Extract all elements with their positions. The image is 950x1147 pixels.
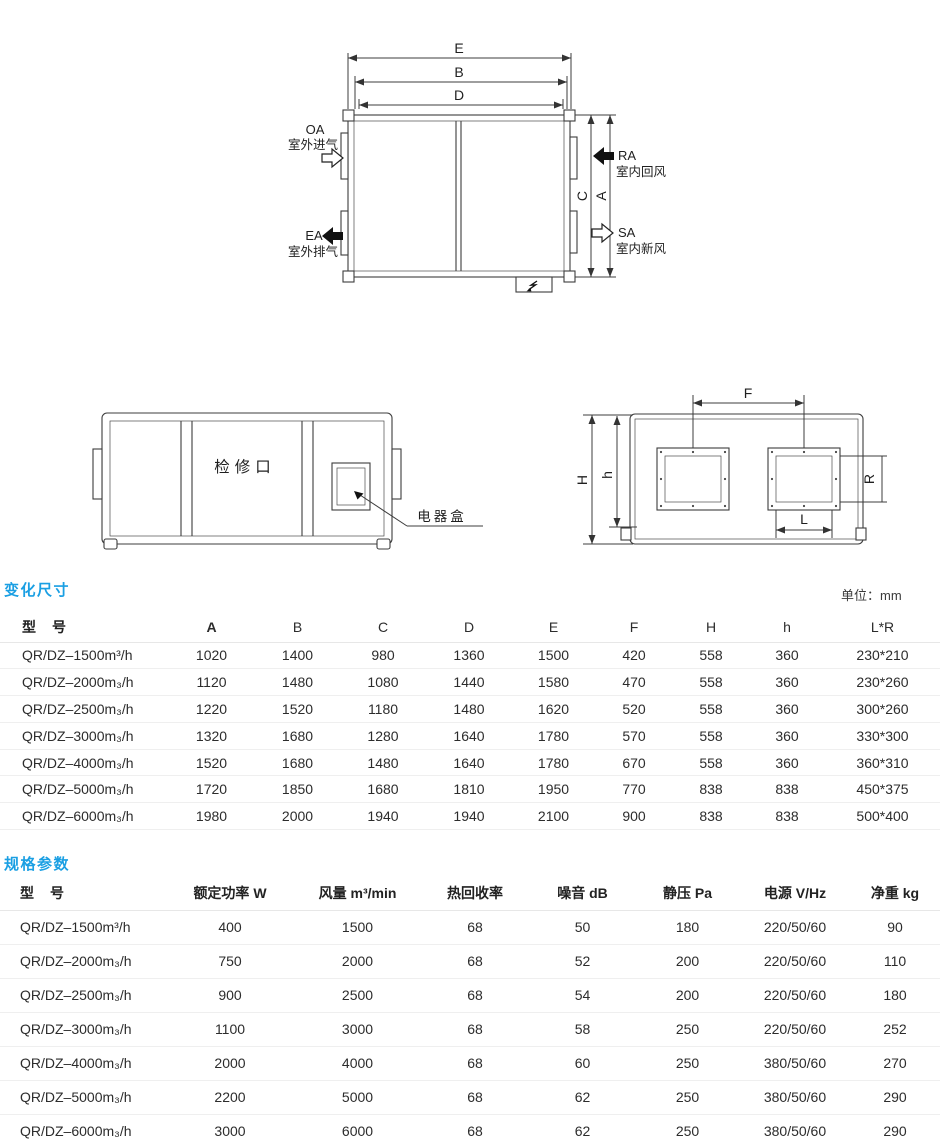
table-row: QR/DZ–4000m₃/h200040006860250380/50/6027… bbox=[0, 1046, 940, 1080]
column-header: 热回收率 bbox=[420, 876, 530, 910]
table-row: QR/DZ–3000m₃/h110030006858250220/50/6025… bbox=[0, 1012, 940, 1046]
value-cell: 450*375 bbox=[825, 776, 940, 803]
value-cell: 230*210 bbox=[825, 642, 940, 669]
value-cell: 1520 bbox=[168, 749, 255, 776]
value-cell: 558 bbox=[673, 749, 749, 776]
model-cell: QR/DZ–1500m³/h bbox=[0, 910, 165, 944]
column-header: A bbox=[168, 612, 255, 642]
column-header: D bbox=[426, 612, 512, 642]
column-header: 型 号 bbox=[0, 876, 165, 910]
column-header: 电源 V/Hz bbox=[740, 876, 850, 910]
model-cell: QR/DZ–3000m₃/h bbox=[0, 1012, 165, 1046]
solid-arrow-left-icon bbox=[322, 227, 343, 245]
value-cell: 558 bbox=[673, 722, 749, 749]
value-cell: 1440 bbox=[426, 669, 512, 696]
dim-label-b: B bbox=[454, 64, 463, 80]
column-header: 型 号 bbox=[0, 612, 168, 642]
value-cell: 68 bbox=[420, 1114, 530, 1147]
value-cell: 1080 bbox=[340, 669, 426, 696]
value-cell: 1640 bbox=[426, 749, 512, 776]
value-cell: 360 bbox=[749, 669, 825, 696]
column-header: 噪音 dB bbox=[530, 876, 635, 910]
value-cell: 360 bbox=[749, 749, 825, 776]
duct-opening-left bbox=[657, 448, 729, 510]
value-cell: 1500 bbox=[295, 910, 420, 944]
dim-label-l: L bbox=[800, 511, 808, 527]
table-row: QR/DZ–1500m³/h10201400980136015004205583… bbox=[0, 642, 940, 669]
value-cell: 1620 bbox=[512, 696, 595, 723]
value-cell: 60 bbox=[530, 1046, 635, 1080]
dim-label-a: A bbox=[593, 191, 609, 201]
column-header: L*R bbox=[825, 612, 940, 642]
value-cell: 4000 bbox=[295, 1046, 420, 1080]
value-cell: 1680 bbox=[255, 749, 340, 776]
value-cell: 68 bbox=[420, 978, 530, 1012]
value-cell: 2200 bbox=[165, 1080, 295, 1114]
port-sa: SA 室内新风 bbox=[592, 224, 667, 256]
dim-label-h-lower: h bbox=[599, 471, 615, 479]
value-cell: 3000 bbox=[295, 1012, 420, 1046]
model-cell: QR/DZ–2500m₃/h bbox=[0, 978, 165, 1012]
end-view-diagram: F H h R L bbox=[575, 383, 950, 563]
value-cell: 62 bbox=[530, 1080, 635, 1114]
port-ra: RA 室内回风 bbox=[593, 147, 667, 179]
dim-label-d: D bbox=[454, 87, 464, 103]
value-cell: 360 bbox=[749, 642, 825, 669]
value-cell: 1280 bbox=[340, 722, 426, 749]
value-cell: 1720 bbox=[168, 776, 255, 803]
column-header: 额定功率 W bbox=[165, 876, 295, 910]
value-cell: 220/50/60 bbox=[740, 978, 850, 1012]
value-cell: 1640 bbox=[426, 722, 512, 749]
value-cell: 1480 bbox=[340, 749, 426, 776]
column-header: h bbox=[749, 612, 825, 642]
value-cell: 1940 bbox=[426, 803, 512, 830]
dim-label-f: F bbox=[744, 385, 753, 401]
value-cell: 1850 bbox=[255, 776, 340, 803]
value-cell: 2000 bbox=[295, 944, 420, 978]
value-cell: 6000 bbox=[295, 1114, 420, 1147]
dim-label-e: E bbox=[454, 40, 463, 56]
value-cell: 200 bbox=[635, 944, 740, 978]
model-cell: QR/DZ–3000m₃/h bbox=[0, 722, 168, 749]
value-cell: 1940 bbox=[340, 803, 426, 830]
value-cell: 1360 bbox=[426, 642, 512, 669]
value-cell: 558 bbox=[673, 669, 749, 696]
dimension-table: 型 号 A B C D E F H h L*R QR/DZ–1500m³/h10… bbox=[0, 612, 940, 830]
value-cell: 250 bbox=[635, 1012, 740, 1046]
port-ea-label: 室外排气 bbox=[288, 244, 339, 259]
value-cell: 290 bbox=[850, 1114, 940, 1147]
value-cell: 250 bbox=[635, 1046, 740, 1080]
value-cell: 1500 bbox=[512, 642, 595, 669]
unit-body-side bbox=[93, 413, 401, 549]
value-cell: 220/50/60 bbox=[740, 910, 850, 944]
value-cell: 68 bbox=[420, 1080, 530, 1114]
model-cell: QR/DZ–2000m₃/h bbox=[0, 669, 168, 696]
value-cell: 2000 bbox=[165, 1046, 295, 1080]
value-cell: 360 bbox=[749, 722, 825, 749]
port-sa-label: 室内新风 bbox=[616, 241, 667, 256]
value-cell: 54 bbox=[530, 978, 635, 1012]
dim-C-A: C A bbox=[574, 115, 616, 277]
port-ea: EA 室外排气 bbox=[288, 227, 343, 259]
table-row: QR/DZ–2000m₃/h75020006852200220/50/60110 bbox=[0, 944, 940, 978]
value-cell: 558 bbox=[673, 696, 749, 723]
value-cell: 1480 bbox=[426, 696, 512, 723]
side-view-diagram: 检修口 电器盒 bbox=[85, 392, 485, 564]
value-cell: 750 bbox=[165, 944, 295, 978]
value-cell: 1100 bbox=[165, 1012, 295, 1046]
value-cell: 770 bbox=[595, 776, 673, 803]
value-cell: 1580 bbox=[512, 669, 595, 696]
column-header: F bbox=[595, 612, 673, 642]
header-row: 型 号 额定功率 W 风量 m³/min 热回收率 噪音 dB 静压 Pa 电源… bbox=[0, 876, 940, 910]
model-cell: QR/DZ–4000m₃/h bbox=[0, 749, 168, 776]
value-cell: 470 bbox=[595, 669, 673, 696]
value-cell: 50 bbox=[530, 910, 635, 944]
value-cell: 1810 bbox=[426, 776, 512, 803]
column-header: H bbox=[673, 612, 749, 642]
dim-label-r: R bbox=[861, 474, 877, 484]
value-cell: 290 bbox=[850, 1080, 940, 1114]
table-row: QR/DZ–5000m₃/h220050006862250380/50/6029… bbox=[0, 1080, 940, 1114]
value-cell: 1520 bbox=[255, 696, 340, 723]
value-cell: 1780 bbox=[512, 749, 595, 776]
port-oa-label: 室外进气 bbox=[288, 137, 339, 152]
value-cell: 270 bbox=[850, 1046, 940, 1080]
value-cell: 360*310 bbox=[825, 749, 940, 776]
dim-label-h-upper: H bbox=[574, 475, 590, 485]
value-cell: 420 bbox=[595, 642, 673, 669]
duct-opening-right bbox=[768, 448, 840, 510]
column-header: 净重 kg bbox=[850, 876, 940, 910]
model-cell: QR/DZ–5000m₃/h bbox=[0, 1080, 165, 1114]
top-view-diagram: E B D C A OA 室外进气 bbox=[258, 25, 678, 325]
value-cell: 180 bbox=[635, 910, 740, 944]
unit-body-end bbox=[621, 414, 866, 544]
model-cell: QR/DZ–2000m₃/h bbox=[0, 944, 165, 978]
model-cell: QR/DZ–6000m₃/h bbox=[0, 803, 168, 830]
value-cell: 68 bbox=[420, 944, 530, 978]
port-oa: OA 室外进气 bbox=[288, 122, 343, 167]
port-ra-code: RA bbox=[618, 148, 636, 163]
unit-note: 单位：mm bbox=[841, 585, 902, 604]
value-cell: 1680 bbox=[340, 776, 426, 803]
table-row: QR/DZ–2500m₃/h90025006854200220/50/60180 bbox=[0, 978, 940, 1012]
value-cell: 110 bbox=[850, 944, 940, 978]
column-header: B bbox=[255, 612, 340, 642]
value-cell: 330*300 bbox=[825, 722, 940, 749]
value-cell: 90 bbox=[850, 910, 940, 944]
value-cell: 670 bbox=[595, 749, 673, 776]
table-row: QR/DZ–6000m₃/h300060006862250380/50/6029… bbox=[0, 1114, 940, 1147]
value-cell: 220/50/60 bbox=[740, 944, 850, 978]
value-cell: 250 bbox=[635, 1080, 740, 1114]
value-cell: 1400 bbox=[255, 642, 340, 669]
value-cell: 838 bbox=[673, 776, 749, 803]
value-cell: 5000 bbox=[295, 1080, 420, 1114]
value-cell: 62 bbox=[530, 1114, 635, 1147]
value-cell: 1220 bbox=[168, 696, 255, 723]
column-header: 静压 Pa bbox=[635, 876, 740, 910]
value-cell: 2500 bbox=[295, 978, 420, 1012]
value-cell: 1320 bbox=[168, 722, 255, 749]
value-cell: 300*260 bbox=[825, 696, 940, 723]
unit-body-top bbox=[341, 110, 577, 292]
value-cell: 900 bbox=[165, 978, 295, 1012]
model-cell: QR/DZ–6000m₃/h bbox=[0, 1114, 165, 1147]
electric-box-label: 电器盒 bbox=[417, 508, 467, 524]
value-cell: 2000 bbox=[255, 803, 340, 830]
table-row: QR/DZ–1500m³/h40015006850180220/50/6090 bbox=[0, 910, 940, 944]
column-header: E bbox=[512, 612, 595, 642]
value-cell: 980 bbox=[340, 642, 426, 669]
port-ea-code: EA bbox=[305, 228, 323, 243]
dim-label-c: C bbox=[574, 191, 590, 201]
value-cell: 380/50/60 bbox=[740, 1046, 850, 1080]
electric-box-side bbox=[332, 463, 370, 510]
value-cell: 1950 bbox=[512, 776, 595, 803]
value-cell: 500*400 bbox=[825, 803, 940, 830]
column-header: C bbox=[340, 612, 426, 642]
access-port-label: 检修口 bbox=[214, 458, 276, 476]
port-oa-code: OA bbox=[306, 122, 325, 137]
solid-arrow-left-icon bbox=[593, 147, 614, 165]
value-cell: 520 bbox=[595, 696, 673, 723]
datasheet-page: E B D C A OA 室外进气 bbox=[0, 0, 950, 1147]
table-row: QR/DZ–2500m₃/h12201520118014801620520558… bbox=[0, 696, 940, 723]
section-title-specs: 规格参数 bbox=[4, 853, 70, 874]
value-cell: 558 bbox=[673, 642, 749, 669]
column-header: 风量 m³/min bbox=[295, 876, 420, 910]
value-cell: 838 bbox=[749, 776, 825, 803]
value-cell: 68 bbox=[420, 1012, 530, 1046]
value-cell: 838 bbox=[749, 803, 825, 830]
value-cell: 68 bbox=[420, 910, 530, 944]
table-row: QR/DZ–6000m₃/h19802000194019402100900838… bbox=[0, 803, 940, 830]
value-cell: 52 bbox=[530, 944, 635, 978]
dim-H-h: H h bbox=[574, 415, 637, 544]
value-cell: 68 bbox=[420, 1046, 530, 1080]
value-cell: 380/50/60 bbox=[740, 1080, 850, 1114]
value-cell: 2100 bbox=[512, 803, 595, 830]
value-cell: 220/50/60 bbox=[740, 1012, 850, 1046]
table-row: QR/DZ–3000m₃/h13201680128016401780570558… bbox=[0, 722, 940, 749]
model-cell: QR/DZ–4000m₃/h bbox=[0, 1046, 165, 1080]
value-cell: 380/50/60 bbox=[740, 1114, 850, 1147]
value-cell: 252 bbox=[850, 1012, 940, 1046]
value-cell: 900 bbox=[595, 803, 673, 830]
value-cell: 3000 bbox=[165, 1114, 295, 1147]
value-cell: 1780 bbox=[512, 722, 595, 749]
port-ra-label: 室内回风 bbox=[616, 164, 667, 179]
table-row: QR/DZ–5000m₃/h17201850168018101950770838… bbox=[0, 776, 940, 803]
model-cell: QR/DZ–5000m₃/h bbox=[0, 776, 168, 803]
dim-D: D bbox=[359, 87, 563, 109]
value-cell: 1180 bbox=[340, 696, 426, 723]
value-cell: 838 bbox=[673, 803, 749, 830]
value-cell: 58 bbox=[530, 1012, 635, 1046]
value-cell: 360 bbox=[749, 696, 825, 723]
port-sa-code: SA bbox=[618, 225, 636, 240]
table-row: QR/DZ–4000m₃/h15201680148016401780670558… bbox=[0, 749, 940, 776]
value-cell: 400 bbox=[165, 910, 295, 944]
value-cell: 1480 bbox=[255, 669, 340, 696]
value-cell: 200 bbox=[635, 978, 740, 1012]
value-cell: 1680 bbox=[255, 722, 340, 749]
value-cell: 570 bbox=[595, 722, 673, 749]
model-cell: QR/DZ–1500m³/h bbox=[0, 642, 168, 669]
value-cell: 230*260 bbox=[825, 669, 940, 696]
section-title-dimensions: 变化尺寸 bbox=[4, 579, 70, 600]
value-cell: 180 bbox=[850, 978, 940, 1012]
value-cell: 1020 bbox=[168, 642, 255, 669]
header-row: 型 号 A B C D E F H h L*R bbox=[0, 612, 940, 642]
spec-table: 型 号 额定功率 W 风量 m³/min 热回收率 噪音 dB 静压 Pa 电源… bbox=[0, 876, 940, 1147]
value-cell: 1120 bbox=[168, 669, 255, 696]
value-cell: 250 bbox=[635, 1114, 740, 1147]
value-cell: 1980 bbox=[168, 803, 255, 830]
table-row: QR/DZ–2000m₃/h11201480108014401580470558… bbox=[0, 669, 940, 696]
model-cell: QR/DZ–2500m₃/h bbox=[0, 696, 168, 723]
